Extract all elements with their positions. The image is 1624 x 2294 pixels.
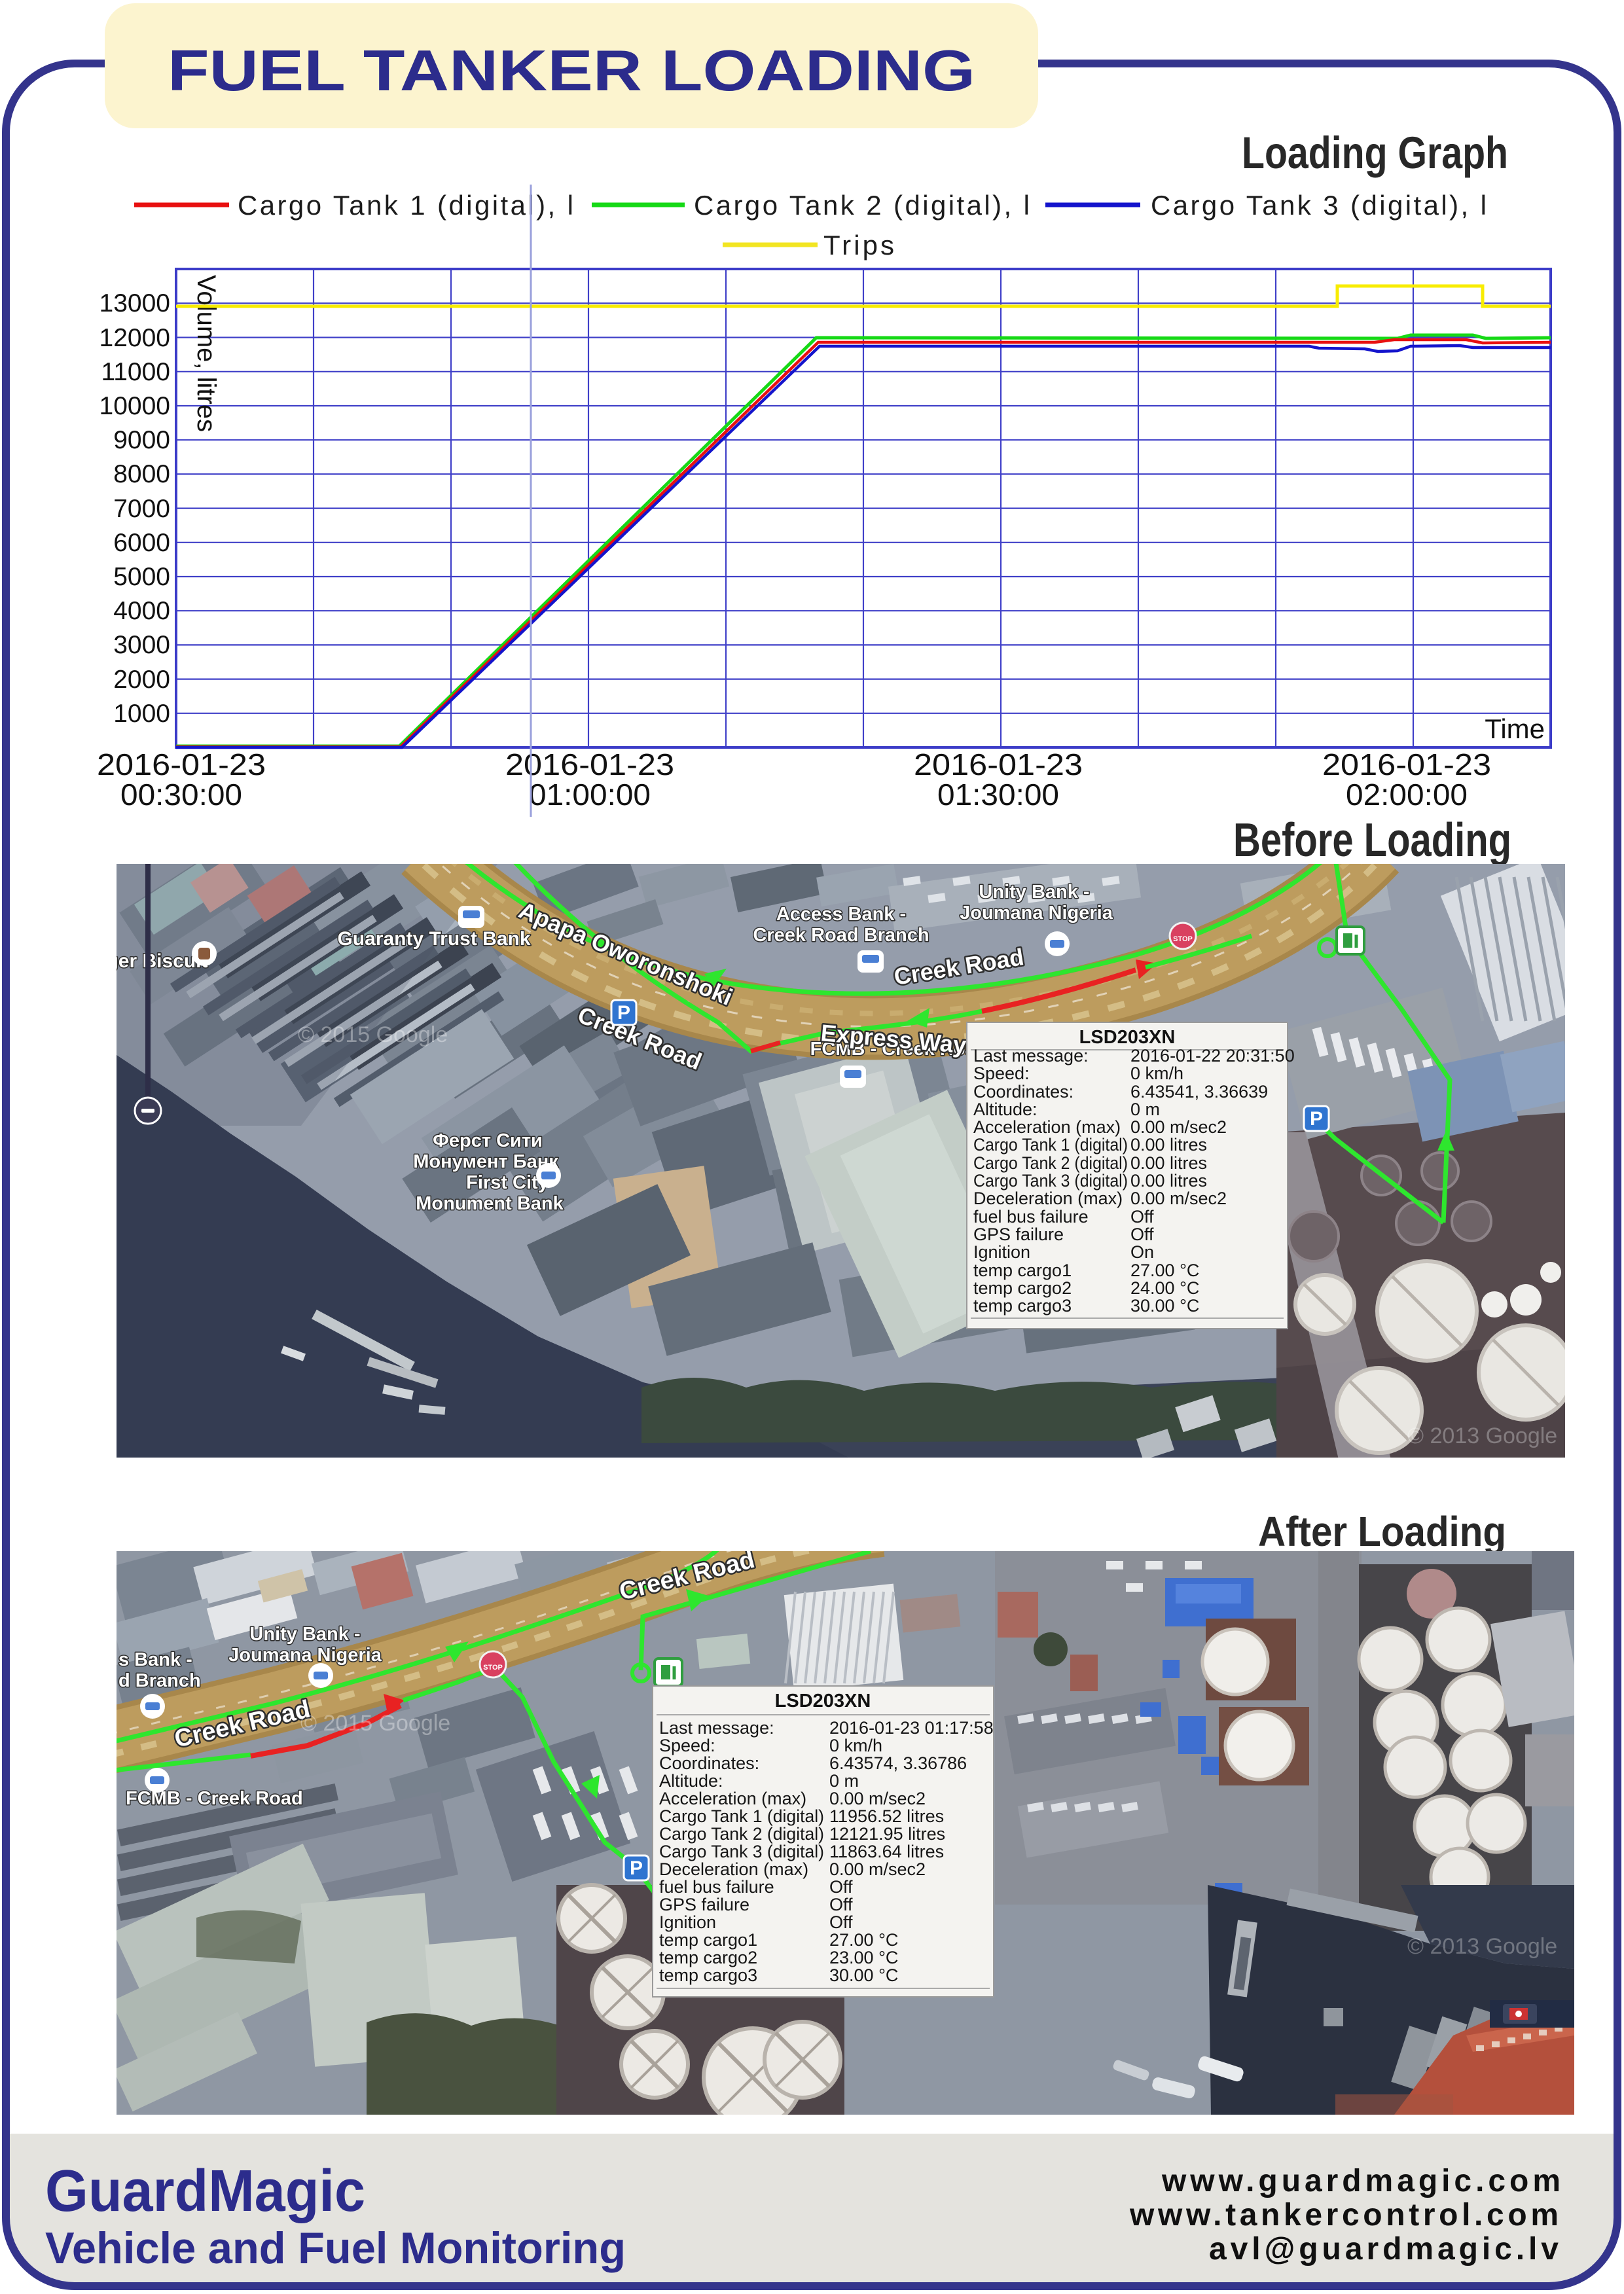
svg-text:Off: Off <box>829 1912 853 1932</box>
svg-text:0.00 m/sec2: 0.00 m/sec2 <box>829 1789 926 1808</box>
svg-text:2000: 2000 <box>113 666 170 694</box>
svg-text:Monument Bank: Monument Bank <box>416 1193 564 1214</box>
svg-text:Cargo Tank 1 (digital): Cargo Tank 1 (digital) <box>659 1806 824 1826</box>
svg-text:LSD203XN: LSD203XN <box>1079 1027 1176 1048</box>
svg-text:0.00 litres: 0.00 litres <box>1130 1153 1207 1173</box>
svg-text:Cargo Tank 3 (digital): Cargo Tank 3 (digital) <box>659 1842 824 1861</box>
svg-text:Off: Off <box>829 1877 853 1897</box>
svg-text:Creek Road Branch: Creek Road Branch <box>753 925 929 946</box>
svg-text:02:00:00: 02:00:00 <box>1346 778 1468 812</box>
svg-text:9000: 9000 <box>113 426 170 454</box>
svg-text:Time: Time <box>1485 713 1545 744</box>
svg-text:Cargo Tank 1 (digital): Cargo Tank 1 (digital) <box>973 1135 1128 1155</box>
svg-text:GPS failure: GPS failure <box>659 1895 749 1914</box>
svg-text:fuel bus failure: fuel bus failure <box>659 1877 774 1897</box>
svg-text:fuel bus failure: fuel bus failure <box>973 1207 1089 1227</box>
svg-text:Монумент Банк: Монумент Банк <box>413 1151 558 1172</box>
svg-text:12000: 12000 <box>99 324 170 352</box>
svg-text:2016-01-23 01:17:58: 2016-01-23 01:17:58 <box>829 1718 994 1738</box>
svg-text:7000: 7000 <box>113 495 170 523</box>
svg-text:00:30:00: 00:30:00 <box>120 778 242 812</box>
svg-text:Last message:: Last message: <box>973 1046 1089 1066</box>
svg-text:Cargo Tank 2 (digital): Cargo Tank 2 (digital) <box>973 1153 1128 1173</box>
svg-text:© 2013 Google: © 2013 Google <box>1407 1424 1557 1448</box>
svg-text:Joumana Nigeria: Joumana Nigeria <box>960 903 1113 923</box>
svg-text:LSD203XN: LSD203XN <box>775 1691 871 1712</box>
svg-text:Trips: Trips <box>823 230 894 260</box>
svg-text:Coordinates:: Coordinates: <box>659 1753 759 1773</box>
svg-text:Access Bank -: Access Bank - <box>776 904 906 925</box>
svg-text:30.00 °C: 30.00 °C <box>1130 1296 1199 1316</box>
svg-text:Cargo Tank 2 (digital): Cargo Tank 2 (digital) <box>659 1824 824 1844</box>
svg-text:11000: 11000 <box>101 358 170 386</box>
svg-text:Joumana Nigeria: Joumana Nigeria <box>228 1645 382 1666</box>
svg-text:5000: 5000 <box>113 563 170 591</box>
svg-text:23.00 °C: 23.00 °C <box>829 1948 898 1967</box>
svg-text:Volume, litres: Volume, litres <box>192 275 221 432</box>
svg-text:© 2015 Google: © 2015 Google <box>298 1022 448 1047</box>
svg-text:0 m: 0 m <box>1130 1100 1160 1119</box>
svg-text:11863.64 litres: 11863.64 litres <box>829 1842 944 1861</box>
svg-text:P: P <box>630 1857 643 1879</box>
svg-text:temp cargo3: temp cargo3 <box>659 1965 757 1985</box>
svg-text:2016-01-23: 2016-01-23 <box>914 747 1083 781</box>
svg-text:0 km/h: 0 km/h <box>829 1736 882 1755</box>
svg-text:27.00 °C: 27.00 °C <box>1130 1261 1199 1280</box>
svg-text:4000: 4000 <box>113 597 170 625</box>
svg-text:30.00 °C: 30.00 °C <box>829 1965 898 1985</box>
svg-text:Unity Bank -: Unity Bank - <box>979 882 1089 903</box>
svg-text:Off: Off <box>829 1895 853 1914</box>
svg-text:Ферст Сити: Ферст Сити <box>433 1130 543 1151</box>
svg-text:P: P <box>617 1002 630 1024</box>
svg-text:Last message:: Last message: <box>659 1718 774 1738</box>
svg-text:Guaranty Trust Bank: Guaranty Trust Bank <box>337 928 530 950</box>
svg-text:STOP: STOP <box>483 1664 503 1672</box>
svg-text:0.00 m/sec2: 0.00 m/sec2 <box>1130 1117 1227 1137</box>
svg-text:Cargo Tank 1 (digital), l: Cargo Tank 1 (digital), l <box>238 190 573 221</box>
svg-text:Acceleration (max): Acceleration (max) <box>659 1789 806 1808</box>
svg-text:After Loading: After Loading <box>1258 1508 1506 1555</box>
svg-text:0.00 m/sec2: 0.00 m/sec2 <box>829 1859 926 1879</box>
svg-text:0.00 litres: 0.00 litres <box>1130 1171 1207 1191</box>
svg-text:Ignition: Ignition <box>973 1242 1030 1262</box>
svg-text:Acceleration (max): Acceleration (max) <box>973 1117 1121 1137</box>
svg-text:Unity Bank -: Unity Bank - <box>249 1624 360 1645</box>
svg-text:temp cargo2: temp cargo2 <box>973 1278 1072 1298</box>
svg-text:temp cargo1: temp cargo1 <box>973 1261 1072 1280</box>
svg-text:10000: 10000 <box>99 392 170 420</box>
svg-text:01:30:00: 01:30:00 <box>937 778 1059 812</box>
svg-text:6.43574, 3.36786: 6.43574, 3.36786 <box>829 1753 967 1773</box>
svg-text:0 km/h: 0 km/h <box>1130 1064 1183 1083</box>
svg-text:24.00 °C: 24.00 °C <box>1130 1278 1199 1298</box>
svg-text:temp cargo2: temp cargo2 <box>659 1948 757 1967</box>
svg-text:www.guardmagic.com: www.guardmagic.com <box>1161 2164 1561 2198</box>
svg-text:www.tankercontrol.com: www.tankercontrol.com <box>1129 2198 1559 2232</box>
svg-text:2016-01-23: 2016-01-23 <box>97 747 266 781</box>
svg-text:© 2015 Google: © 2015 Google <box>300 1711 450 1736</box>
svg-text:8000: 8000 <box>113 460 170 488</box>
svg-text:© 2013 Google: © 2013 Google <box>1407 1934 1557 1959</box>
svg-text:Loading Graph: Loading Graph <box>1242 128 1508 178</box>
svg-text:6000: 6000 <box>113 529 170 557</box>
svg-text:P: P <box>1310 1108 1323 1130</box>
svg-text:d Branch: d Branch <box>118 1670 201 1691</box>
svg-text:6.43541, 3.36639: 6.43541, 3.36639 <box>1130 1082 1268 1102</box>
svg-text:s Bank -: s Bank - <box>118 1649 192 1670</box>
svg-text:27.00 °C: 27.00 °C <box>829 1930 898 1950</box>
svg-text:FUEL TANKER LOADING: FUEL TANKER LOADING <box>168 38 975 103</box>
svg-text:Before Loading: Before Loading <box>1233 814 1511 867</box>
svg-text:temp cargo1: temp cargo1 <box>659 1930 757 1950</box>
svg-text:Deceleration (max): Deceleration (max) <box>659 1859 808 1879</box>
svg-text:0.00 litres: 0.00 litres <box>1130 1135 1207 1155</box>
svg-text:Off: Off <box>1130 1225 1154 1244</box>
svg-text:3000: 3000 <box>113 631 170 659</box>
svg-text:On: On <box>1130 1242 1154 1262</box>
svg-text:11956.52 litres: 11956.52 litres <box>829 1806 944 1826</box>
svg-text:Ignition: Ignition <box>659 1912 716 1932</box>
svg-text:2016-01-23: 2016-01-23 <box>1322 747 1491 781</box>
svg-text:Cargo Tank 3 (digital): Cargo Tank 3 (digital) <box>973 1171 1128 1191</box>
svg-text:GPS failure: GPS failure <box>973 1225 1064 1244</box>
svg-text:temp cargo3: temp cargo3 <box>973 1296 1072 1316</box>
svg-text:Cargo Tank 2 (digital), l: Cargo Tank 2 (digital), l <box>694 190 1030 221</box>
svg-text:Cargo Tank 3 (digital), l: Cargo Tank 3 (digital), l <box>1151 190 1487 221</box>
svg-text:Coordinates:: Coordinates: <box>973 1082 1074 1102</box>
svg-text:2016-01-22 20:31:50: 2016-01-22 20:31:50 <box>1130 1046 1295 1066</box>
svg-text:Off: Off <box>1130 1207 1154 1227</box>
svg-text:12121.95 litres: 12121.95 litres <box>829 1824 945 1844</box>
svg-text:0 m: 0 m <box>829 1771 859 1791</box>
svg-text:GuardMagic: GuardMagic <box>45 2159 365 2224</box>
svg-text:01:00:00: 01:00:00 <box>529 778 651 812</box>
svg-text:STOP: STOP <box>1173 935 1193 943</box>
svg-text:Speed:: Speed: <box>973 1064 1030 1083</box>
svg-text:13000: 13000 <box>99 289 170 317</box>
svg-text:1000: 1000 <box>113 700 170 728</box>
svg-text:Deceleration (max): Deceleration (max) <box>973 1189 1123 1208</box>
svg-text:Altitude:: Altitude: <box>659 1771 723 1791</box>
svg-text:0.00 m/sec2: 0.00 m/sec2 <box>1130 1189 1227 1208</box>
svg-text:Vehicle and Fuel Monitoring: Vehicle and Fuel Monitoring <box>45 2223 626 2273</box>
svg-text:First City: First City <box>466 1172 549 1193</box>
svg-text:Altitude:: Altitude: <box>973 1100 1038 1119</box>
svg-text:Speed:: Speed: <box>659 1736 715 1755</box>
